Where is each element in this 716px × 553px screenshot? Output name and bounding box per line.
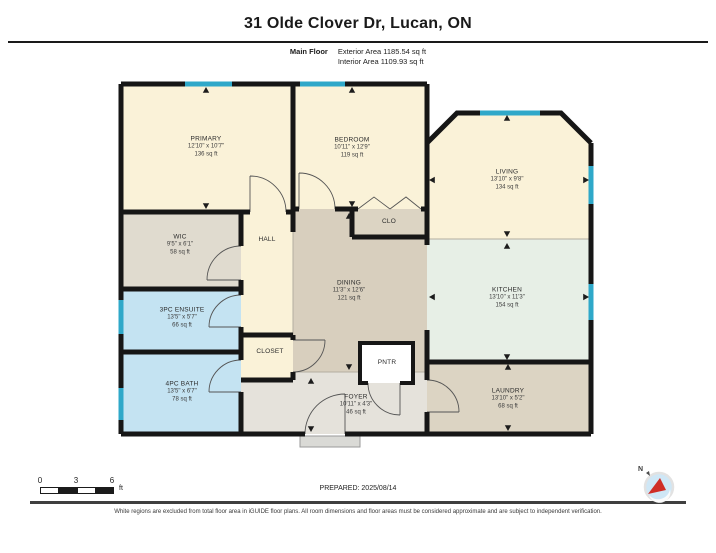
room-living-floor: [427, 113, 591, 239]
room-bedroom-floor: [293, 84, 427, 209]
room-ensuite-floor: [121, 289, 241, 352]
scale-tick-0: 0: [38, 476, 42, 485]
room-pntr-floor: [360, 343, 413, 383]
floor-plan-drawing: N: [0, 0, 716, 553]
room-closet-floor: [241, 335, 293, 380]
room-kitchen-floor: [427, 239, 591, 362]
room-hall-floor: [241, 212, 293, 335]
prepared-date: PREPARED: 2025/08/14: [0, 485, 716, 492]
scale-tick-6: 6: [110, 476, 114, 485]
room-fills: [121, 84, 591, 447]
front-porch: [300, 436, 360, 447]
room-bath-floor: [121, 352, 241, 434]
room-wic-floor: [121, 212, 241, 289]
scale-tick-3: 3: [74, 476, 78, 485]
compass-north-label: N: [638, 466, 643, 473]
disclaimer-text: White regions are excluded from total fl…: [10, 509, 706, 515]
floor-plan-page: 31 Olde Clover Dr, Lucan, ON Main Floor …: [0, 0, 716, 553]
room-clo-floor: [352, 209, 427, 237]
room-primary-floor: [121, 84, 293, 212]
room-laundry-floor: [427, 362, 591, 434]
